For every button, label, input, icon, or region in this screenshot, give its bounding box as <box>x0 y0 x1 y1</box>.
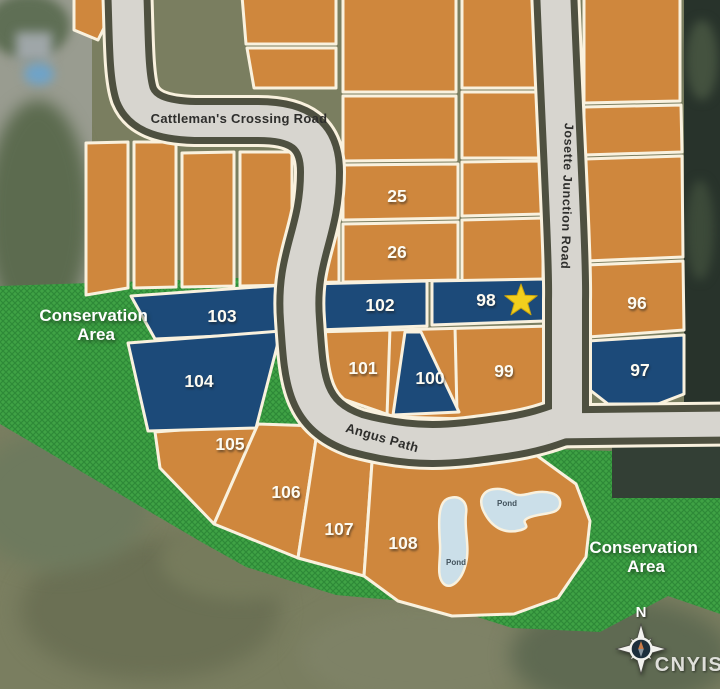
lot-label-101: 101 <box>348 358 377 378</box>
lot-label-102: 102 <box>365 295 394 315</box>
lot-top-2 <box>343 0 456 92</box>
lot-top-1b <box>247 48 336 88</box>
lot-mid-2 <box>462 92 540 158</box>
lot-label-99: 99 <box>494 361 514 381</box>
lot-east-1 <box>584 0 680 103</box>
pond-lower-label: Pond <box>446 558 466 567</box>
lot-label-108: 108 <box>388 533 417 553</box>
lot-top-1a <box>242 0 336 44</box>
lot-right-1 <box>462 161 543 216</box>
lot-upper-left-c <box>182 152 234 287</box>
north-label: N <box>636 604 647 621</box>
lot-label-107: 107 <box>324 519 353 539</box>
lot-label-96: 96 <box>627 293 647 313</box>
watermark-cnyis: CNYIS <box>655 654 720 676</box>
pond-upper-label: Pond <box>497 499 517 508</box>
lot-upper-left-b <box>134 142 176 288</box>
lot-label-97: 97 <box>630 360 649 380</box>
lot-mid-1 <box>343 96 456 161</box>
lot-top-3 <box>462 0 540 88</box>
lot-label-103: 103 <box>207 306 236 326</box>
lot-label-100: 100 <box>415 368 444 388</box>
lot-border-99 <box>455 327 457 413</box>
road-east-stub <box>548 424 720 426</box>
lot-right-2 <box>462 218 543 282</box>
lot-label-106: 106 <box>271 482 300 502</box>
lot-east-2 <box>584 105 682 155</box>
lot-label-26: 26 <box>387 242 407 262</box>
plat-map-svg: Cattleman's Crossing Road Josette Juncti… <box>0 0 720 689</box>
pond-lower <box>439 497 467 585</box>
lot-label-25: 25 <box>387 186 407 206</box>
lot-label-98: 98 <box>476 290 496 310</box>
lot-label-105: 105 <box>215 434 244 454</box>
lot-label-104: 104 <box>184 371 213 391</box>
lot-east-3 <box>585 156 683 261</box>
lot-upper-left-a <box>86 142 128 295</box>
road-label-cattlemans-crossing: Cattleman's Crossing Road <box>151 111 328 126</box>
plat-map: Cattleman's Crossing Road Josette Juncti… <box>0 0 720 689</box>
